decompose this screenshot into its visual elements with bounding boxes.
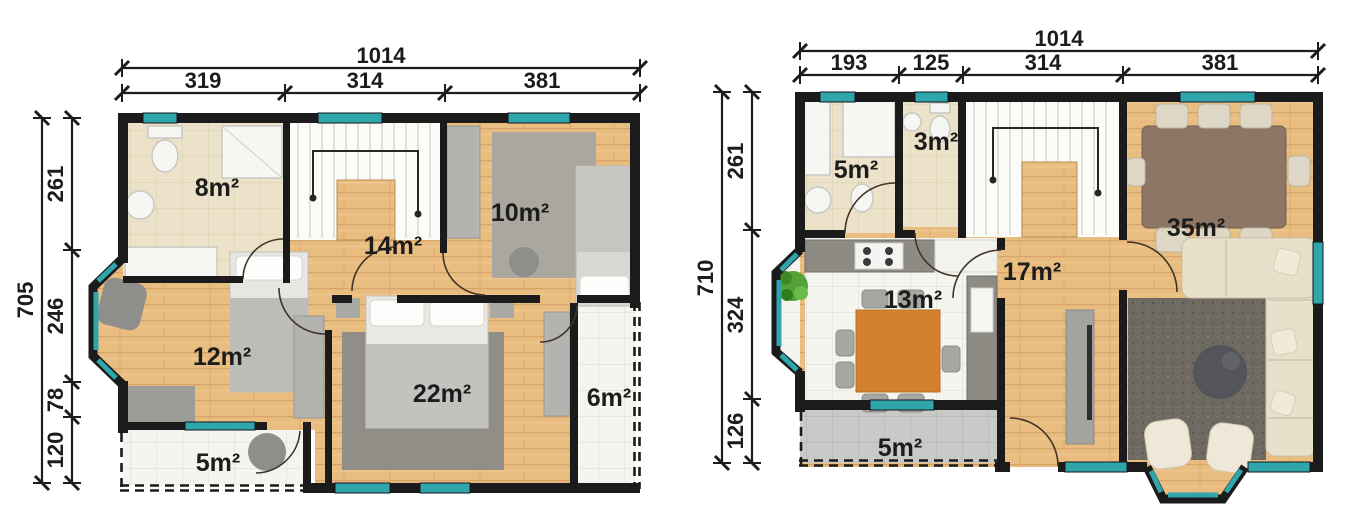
room-label-bathroom: 8m² <box>195 174 239 202</box>
svg-text:246: 246 <box>43 298 68 335</box>
room-label-living-room: 35m² <box>1167 214 1225 242</box>
dining-table <box>856 310 940 392</box>
window <box>1065 462 1127 472</box>
toilet-tank <box>148 126 182 138</box>
svg-text:324: 324 <box>723 296 748 333</box>
upper-floor-plan: 8m² 14m² 10m² 12m² 22m² 6m² 5m² 1014 319… <box>13 43 647 493</box>
stove <box>855 243 903 269</box>
floor-plans-image: 8m² 14m² 10m² 12m² 22m² 6m² 5m² 1014 319… <box>0 0 1351 519</box>
ground-height-segments-dimension: 261 324 126 <box>723 85 761 470</box>
kitchen-cabinet <box>935 240 997 272</box>
svg-text:193: 193 <box>831 50 868 75</box>
room-label-bathroom: 5m² <box>834 156 878 184</box>
room-label-kitchen: 13m² <box>884 286 942 314</box>
wc-toilet-tank <box>930 103 950 113</box>
window <box>915 92 948 102</box>
room-label-bedroom-master: 22m² <box>413 380 471 408</box>
room-label-wc: 3m² <box>914 128 958 156</box>
svg-text:319: 319 <box>185 68 222 93</box>
svg-text:126: 126 <box>723 413 748 450</box>
armchair <box>1143 417 1193 471</box>
upper-width-segments-dimension: 319 314 381 <box>115 68 647 102</box>
svg-text:120: 120 <box>43 432 68 469</box>
svg-text:710: 710 <box>693 260 718 297</box>
svg-text:125: 125 <box>913 50 950 75</box>
svg-text:314: 314 <box>1025 50 1062 75</box>
room-label-hall: 14m² <box>364 232 422 260</box>
dim-label: 1014 <box>1035 26 1085 51</box>
window <box>870 400 934 410</box>
room-label-balcony-bottom: 5m² <box>196 449 240 477</box>
window <box>420 483 470 493</box>
room-label-balcony-side: 6m² <box>587 384 631 412</box>
fridge <box>971 288 993 332</box>
tv-icon <box>1087 325 1092 420</box>
window <box>335 483 390 493</box>
window <box>143 113 177 123</box>
svg-text:261: 261 <box>723 143 748 180</box>
room-label-terrace: 5m² <box>878 434 922 462</box>
room-label-bedroom-left: 12m² <box>193 343 251 371</box>
toilet-icon <box>152 140 178 172</box>
room-label-bedroom-right: 10m² <box>491 199 549 227</box>
svg-text:705: 705 <box>13 282 38 319</box>
svg-text:381: 381 <box>524 68 561 93</box>
svg-text:78: 78 <box>43 388 68 412</box>
wardrobe <box>447 126 480 238</box>
window <box>820 92 855 102</box>
window <box>1180 92 1255 102</box>
plant-icon <box>778 271 808 301</box>
dim-label: 1014 <box>357 43 407 68</box>
vanity <box>125 247 217 279</box>
chair <box>509 247 539 277</box>
dining-table-large <box>1142 126 1286 228</box>
window <box>318 113 382 123</box>
window <box>185 422 255 430</box>
svg-text:314: 314 <box>347 68 384 93</box>
upper-height-segments-dimension: 261 246 78 120 <box>43 111 81 490</box>
sink-icon <box>126 191 154 219</box>
wardrobe <box>544 312 570 416</box>
svg-text:381: 381 <box>1202 50 1239 75</box>
floor-plans-canvas: 8m² 14m² 10m² 12m² 22m² 6m² 5m² 1014 319… <box>0 0 1351 519</box>
shower <box>843 99 895 157</box>
ground-width-segments-dimension: 193 125 314 381 <box>793 50 1325 84</box>
toilet-icon <box>851 184 873 212</box>
ground-floor-plan: 5m² 3m² 17m² 13m² 35m² 5m² 1014 193 125 … <box>693 26 1325 499</box>
sink-icon <box>805 187 831 213</box>
window <box>508 113 570 123</box>
desk <box>125 386 195 422</box>
room-label-hall: 17m² <box>1003 258 1061 286</box>
svg-text:261: 261 <box>43 166 68 203</box>
beanbag <box>1193 345 1247 399</box>
window <box>1248 462 1310 472</box>
window <box>1313 242 1323 304</box>
